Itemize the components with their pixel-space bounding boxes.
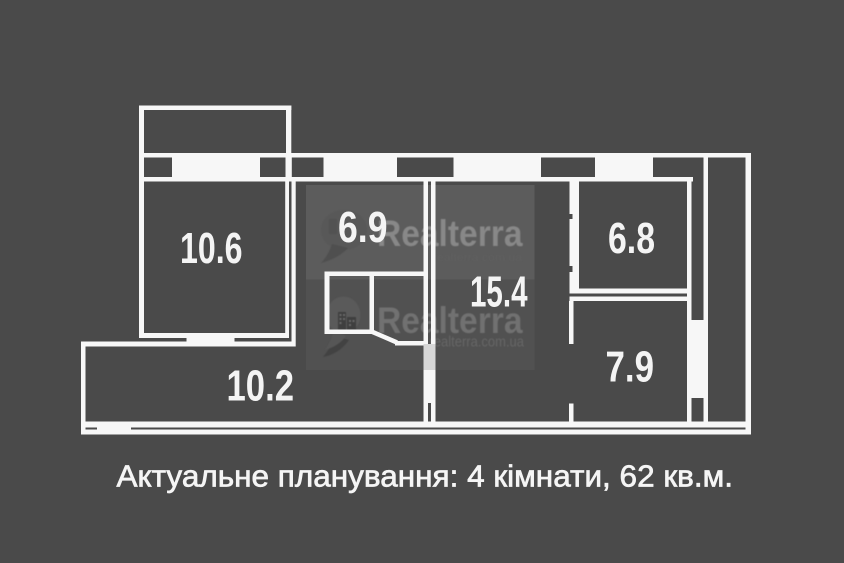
svg-text:realterra.com.ua: realterra.com.ua [430,335,525,351]
svg-text:15.4: 15.4 [470,268,528,317]
svg-text:Realterra: Realterra [377,213,523,254]
svg-text:10.2: 10.2 [227,362,295,411]
svg-text:6.8: 6.8 [608,214,655,263]
svg-text:10.6: 10.6 [180,224,243,273]
svg-text:realterra.com.ua: realterra.com.ua [433,252,523,264]
svg-text:7.9: 7.9 [606,343,655,392]
svg-text:Актуальне планування: 4 кімнат: Актуальне планування: 4 кімнати, 62 кв.м… [117,460,734,494]
svg-text:6.9: 6.9 [338,203,388,252]
